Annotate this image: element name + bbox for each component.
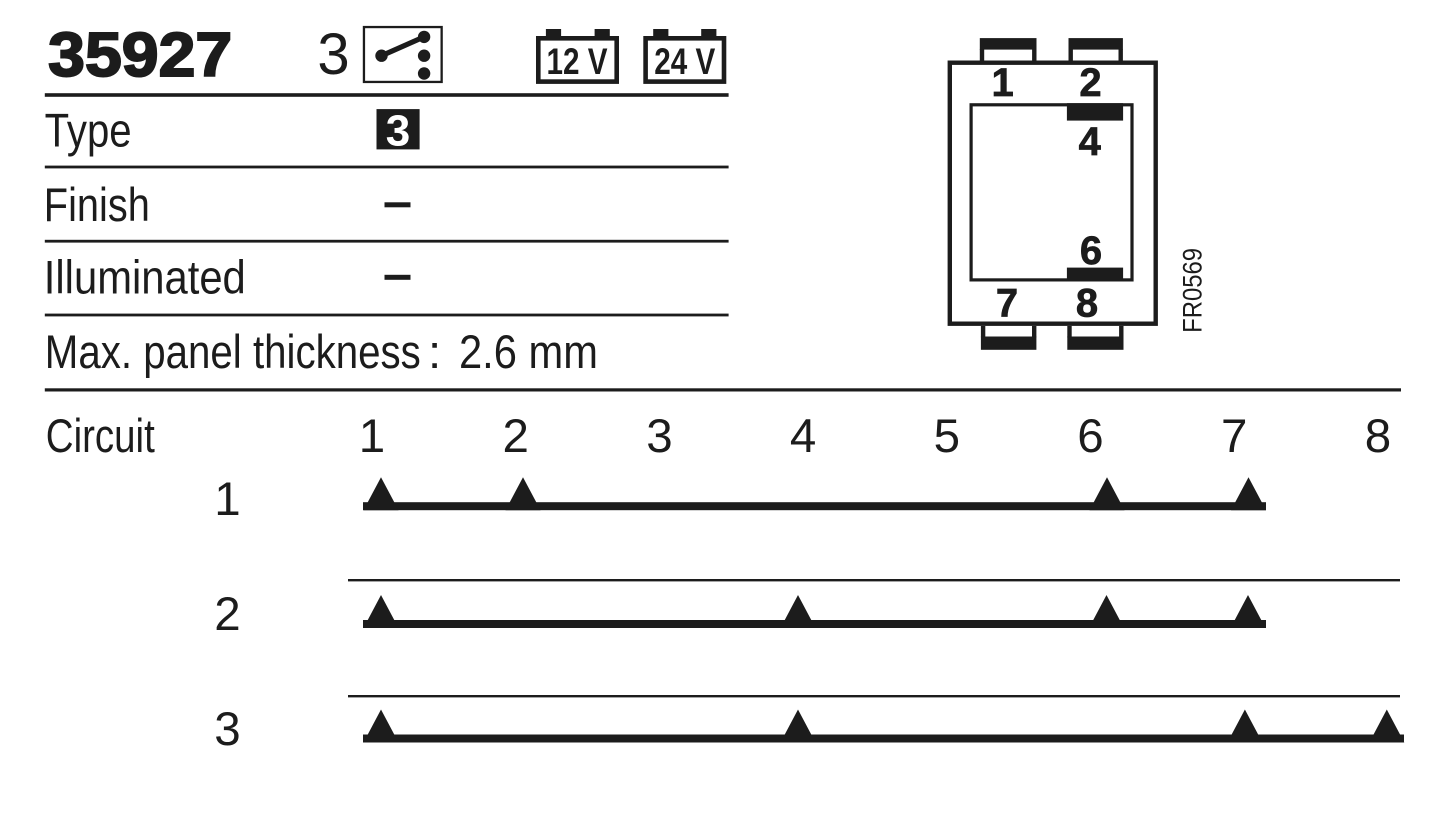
svg-text:8: 8 [1365, 410, 1391, 463]
svg-text:Illuminated: Illuminated [44, 252, 246, 305]
svg-text:6: 6 [1077, 410, 1103, 463]
svg-text:FR0569: FR0569 [1178, 248, 1208, 333]
svg-text::: : [428, 326, 441, 379]
svg-text:Finish: Finish [44, 179, 150, 232]
svg-text:12 V: 12 V [547, 41, 608, 82]
svg-text:3: 3 [646, 410, 672, 463]
svg-text:35927: 35927 [48, 21, 232, 90]
svg-text:Max. panel thickness: Max. panel thickness [45, 326, 421, 379]
svg-text:2: 2 [214, 588, 240, 641]
svg-text:1: 1 [991, 61, 1013, 105]
svg-text:7: 7 [1221, 410, 1247, 463]
svg-text:3: 3 [386, 107, 410, 156]
svg-text:4: 4 [1079, 120, 1102, 164]
svg-text:7: 7 [996, 281, 1018, 325]
svg-text:3: 3 [317, 22, 349, 87]
svg-text:2: 2 [1079, 61, 1101, 105]
svg-text:4: 4 [790, 410, 816, 463]
svg-text:5: 5 [934, 410, 960, 463]
svg-text:6: 6 [1080, 229, 1102, 273]
svg-text:Type: Type [45, 105, 132, 158]
svg-text:24 V: 24 V [654, 41, 715, 82]
svg-text:1: 1 [359, 410, 385, 463]
svg-text:Circuit: Circuit [46, 410, 155, 463]
svg-text:8: 8 [1076, 281, 1098, 325]
svg-text:2.6 mm: 2.6 mm [459, 326, 598, 379]
svg-text:2: 2 [502, 410, 528, 463]
svg-text:3: 3 [214, 703, 240, 756]
svg-text:1: 1 [214, 473, 240, 526]
